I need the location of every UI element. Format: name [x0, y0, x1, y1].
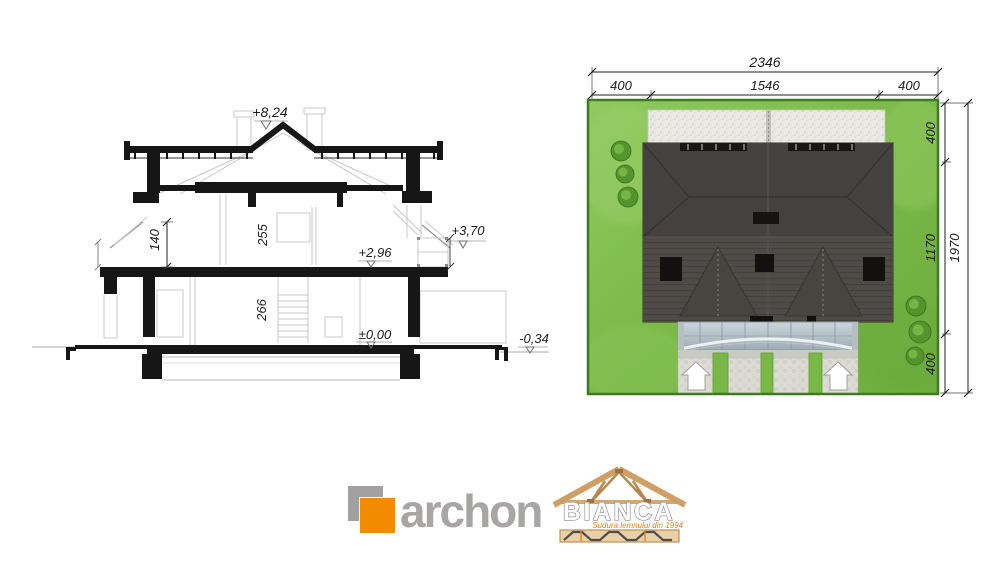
dim-setback-bottom: 400	[923, 352, 938, 374]
dim-plot-depth: 1970	[947, 233, 962, 263]
dim-attic-room: 255	[255, 223, 270, 246]
drawing-sheet: +8,24 140 255 +3,70 +2,96 266 ±0,00 -0,3…	[0, 0, 1000, 562]
section-gray-lines	[32, 108, 549, 380]
dim-house-width: 1546	[751, 78, 781, 93]
dim-setback-left: 400	[610, 78, 632, 93]
dim-ground-room: 266	[254, 298, 269, 321]
archon-logo: archon	[346, 480, 551, 538]
front-canopy	[678, 322, 858, 352]
dim-setback-right: 400	[898, 78, 920, 93]
bianca-logo: BIANCA Sudura lemnului din 1994	[551, 461, 689, 543]
dim-knee-wall: 140	[147, 228, 162, 250]
level-ridge: +8,24	[252, 104, 288, 120]
bianca-beam	[560, 530, 679, 542]
level-ground-floor: ±0,00	[359, 327, 392, 342]
gravel-area	[648, 110, 885, 145]
level-canopy-top: +3,70	[452, 223, 486, 238]
house-roof	[643, 143, 893, 323]
cross-section-drawing: +8,24 140 255 +3,70 +2,96 266 ±0,00 -0,3…	[30, 95, 550, 395]
dim-house-depth: 1170	[923, 233, 938, 262]
level-terrace: -0,34	[519, 331, 549, 346]
archon-wordmark: archon	[400, 485, 541, 537]
dim-plot-width: 2346	[748, 54, 780, 70]
driveway	[678, 353, 858, 394]
bianca-tagline: Sudura lemnului din 1994	[592, 521, 683, 530]
site-plan: 2346 400 1546 400	[585, 45, 1000, 400]
level-attic-floor: +2,96	[359, 245, 393, 260]
archon-logo-square	[360, 498, 395, 533]
dim-setback-top: 400	[923, 121, 938, 143]
